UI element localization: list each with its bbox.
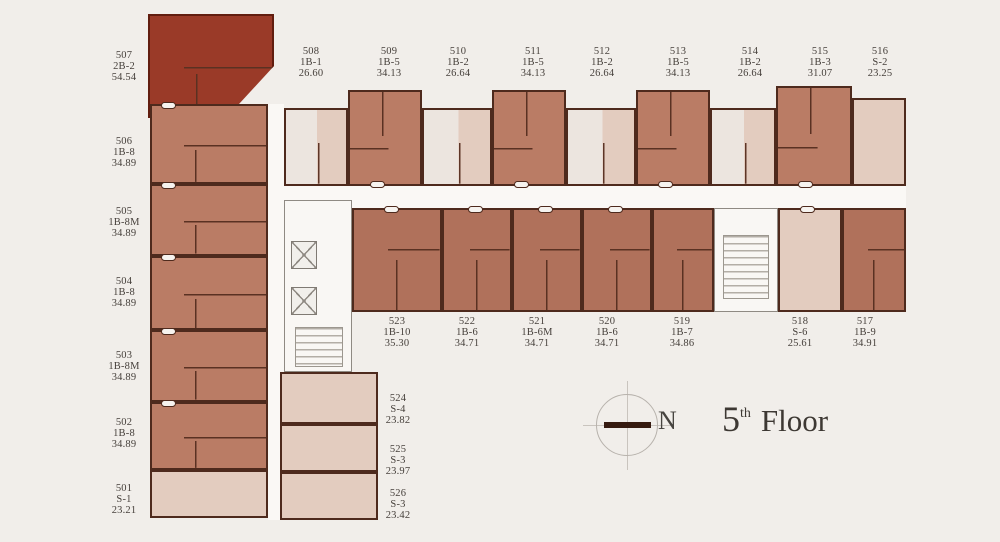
unit-526[interactable] (280, 472, 378, 520)
unit-515[interactable] (776, 86, 852, 186)
unit-type: 1B-8M (92, 361, 156, 372)
unit-516-label: 516 S-2 23.25 (848, 46, 912, 79)
unit-517[interactable] (842, 208, 906, 312)
unit-number: 524 (366, 393, 430, 404)
unit-511[interactable] (492, 90, 566, 186)
unit-number: 512 (570, 46, 634, 57)
unit-515-label: 515 1B-3 31.07 (788, 46, 852, 79)
unit-number: 504 (92, 276, 156, 287)
unit-area: 34.89 (92, 439, 156, 450)
ac-unit-icon (161, 400, 176, 407)
ac-unit-icon (798, 181, 813, 188)
unit-519-label: 519 1B-7 34.86 (650, 316, 714, 349)
unit-508[interactable] (284, 108, 348, 186)
ac-unit-icon (608, 206, 623, 213)
unit-number: 519 (650, 316, 714, 327)
unit-number: 523 (365, 316, 429, 327)
unit-number: 506 (92, 136, 156, 147)
unit-524[interactable] (280, 372, 378, 424)
unit-number: 507 (92, 50, 156, 61)
unit-type: S-3 (366, 499, 430, 510)
unit-type: S-3 (366, 455, 430, 466)
unit-number: 522 (435, 316, 499, 327)
unit-area: 54.54 (92, 72, 156, 83)
unit-507-label: 507 2B-2 54.54 (92, 50, 156, 83)
unit-type: 1B-6M (505, 327, 569, 338)
elevator-icon (291, 287, 317, 315)
unit-519[interactable] (652, 208, 714, 312)
unit-number: 511 (501, 46, 565, 57)
unit-area: 26.64 (570, 68, 634, 79)
unit-type: 1B-5 (646, 57, 710, 68)
stair-core (714, 208, 778, 312)
unit-505[interactable] (150, 184, 268, 256)
unit-number: 502 (92, 417, 156, 428)
floor-number: 5 (722, 399, 740, 439)
unit-area: 26.60 (279, 68, 343, 79)
unit-area: 31.07 (788, 68, 852, 79)
unit-type: 1B-8M (92, 217, 156, 228)
unit-514-label: 514 1B-2 26.64 (718, 46, 782, 79)
unit-509[interactable] (348, 90, 422, 186)
unit-503[interactable] (150, 330, 268, 402)
staircase-icon (295, 327, 343, 367)
ac-unit-icon (161, 254, 176, 261)
ac-unit-icon (370, 181, 385, 188)
unit-area: 26.64 (426, 68, 490, 79)
unit-510-label: 510 1B-2 26.64 (426, 46, 490, 79)
unit-517-label: 517 1B-9 34.91 (833, 316, 897, 349)
ac-unit-icon (538, 206, 553, 213)
unit-area: 34.13 (646, 68, 710, 79)
unit-type: 1B-3 (788, 57, 852, 68)
unit-type: 1B-6 (575, 327, 639, 338)
unit-502[interactable] (150, 402, 268, 470)
ac-unit-icon (384, 206, 399, 213)
unit-type: 1B-5 (357, 57, 421, 68)
unit-number: 515 (788, 46, 852, 57)
unit-525[interactable] (280, 424, 378, 472)
unit-number: 526 (366, 488, 430, 499)
unit-502-label: 502 1B-8 34.89 (92, 417, 156, 450)
unit-524-label: 524 S-4 23.82 (366, 393, 430, 426)
unit-521[interactable] (512, 208, 582, 312)
unit-type: 1B-2 (426, 57, 490, 68)
staircase-icon (723, 235, 769, 299)
unit-520-label: 520 1B-6 34.71 (575, 316, 639, 349)
unit-type: 1B-6 (435, 327, 499, 338)
unit-512-label: 512 1B-2 26.64 (570, 46, 634, 79)
unit-type: 1B-2 (570, 57, 634, 68)
unit-512[interactable] (566, 108, 636, 186)
unit-number: 505 (92, 206, 156, 217)
ac-unit-icon (468, 206, 483, 213)
unit-501[interactable] (150, 470, 268, 518)
compass-needle (604, 422, 651, 428)
unit-type: 1B-7 (650, 327, 714, 338)
unit-type: S-6 (768, 327, 832, 338)
floor-plan: 507 2B-2 54.54 506 1B-8 34.89 505 1B-8M … (0, 0, 1000, 542)
unit-number: 510 (426, 46, 490, 57)
unit-type: 1B-10 (365, 327, 429, 338)
unit-type: 1B-2 (718, 57, 782, 68)
unit-type: S-4 (366, 404, 430, 415)
unit-518[interactable] (778, 208, 842, 312)
unit-505-label: 505 1B-8M 34.89 (92, 206, 156, 239)
ac-unit-icon (161, 102, 176, 109)
north-label: N (658, 406, 677, 436)
unit-area: 34.13 (501, 68, 565, 79)
unit-523[interactable] (352, 208, 442, 312)
unit-area: 34.89 (92, 158, 156, 169)
unit-area: 34.71 (505, 338, 569, 349)
unit-area: 34.89 (92, 372, 156, 383)
unit-area: 23.25 (848, 68, 912, 79)
unit-area: 35.30 (365, 338, 429, 349)
corridor-horizontal (268, 186, 906, 208)
unit-area: 34.71 (435, 338, 499, 349)
floor-ordinal: th (740, 406, 751, 421)
unit-type: S-1 (92, 494, 156, 505)
unit-503-label: 503 1B-8M 34.89 (92, 350, 156, 383)
unit-type: 1B-8 (92, 428, 156, 439)
unit-508-label: 508 1B-1 26.60 (279, 46, 343, 79)
unit-506-label: 506 1B-8 34.89 (92, 136, 156, 169)
unit-523-label: 523 1B-10 35.30 (365, 316, 429, 349)
ac-unit-icon (658, 181, 673, 188)
unit-type: 1B-8 (92, 287, 156, 298)
unit-number: 525 (366, 444, 430, 455)
floor-title: 5thFloor (722, 398, 828, 440)
ac-unit-icon (161, 182, 176, 189)
unit-area: 34.86 (650, 338, 714, 349)
unit-525-label: 525 S-3 23.97 (366, 444, 430, 477)
unit-type: S-2 (848, 57, 912, 68)
unit-number: 503 (92, 350, 156, 361)
unit-504[interactable] (150, 256, 268, 330)
unit-526-label: 526 S-3 23.42 (366, 488, 430, 521)
unit-type: 2B-2 (92, 61, 156, 72)
unit-area: 23.21 (92, 505, 156, 516)
unit-number: 516 (848, 46, 912, 57)
unit-number: 514 (718, 46, 782, 57)
unit-type: 1B-8 (92, 147, 156, 158)
unit-514[interactable] (710, 108, 776, 186)
unit-type: 1B-9 (833, 327, 897, 338)
unit-area: 34.71 (575, 338, 639, 349)
unit-number: 508 (279, 46, 343, 57)
unit-area: 23.82 (366, 415, 430, 426)
unit-number: 509 (357, 46, 421, 57)
elevator-core (284, 200, 352, 372)
unit-area: 34.13 (357, 68, 421, 79)
unit-510[interactable] (422, 108, 492, 186)
unit-area: 23.97 (366, 466, 430, 477)
unit-504-label: 504 1B-8 34.89 (92, 276, 156, 309)
unit-506[interactable] (150, 104, 268, 184)
floor-word: Floor (761, 403, 828, 438)
unit-area: 34.89 (92, 228, 156, 239)
unit-516[interactable] (852, 98, 906, 186)
unit-area: 34.89 (92, 298, 156, 309)
unit-522[interactable] (442, 208, 512, 312)
unit-number: 513 (646, 46, 710, 57)
elevator-icon (291, 241, 317, 269)
unit-501-label: 501 S-1 23.21 (92, 483, 156, 516)
unit-number: 520 (575, 316, 639, 327)
unit-522-label: 522 1B-6 34.71 (435, 316, 499, 349)
unit-521-label: 521 1B-6M 34.71 (505, 316, 569, 349)
ac-unit-icon (800, 206, 815, 213)
unit-number: 518 (768, 316, 832, 327)
unit-area: 26.64 (718, 68, 782, 79)
unit-511-label: 511 1B-5 34.13 (501, 46, 565, 79)
unit-type: 1B-5 (501, 57, 565, 68)
unit-area: 34.91 (833, 338, 897, 349)
unit-number: 501 (92, 483, 156, 494)
unit-number: 517 (833, 316, 897, 327)
unit-area: 23.42 (366, 510, 430, 521)
unit-type: 1B-1 (279, 57, 343, 68)
ac-unit-icon (161, 328, 176, 335)
ac-unit-icon (514, 181, 529, 188)
unit-513-label: 513 1B-5 34.13 (646, 46, 710, 79)
unit-509-label: 509 1B-5 34.13 (357, 46, 421, 79)
unit-520[interactable] (582, 208, 652, 312)
unit-number: 521 (505, 316, 569, 327)
unit-518-label: 518 S-6 25.61 (768, 316, 832, 349)
unit-513[interactable] (636, 90, 710, 186)
unit-area: 25.61 (768, 338, 832, 349)
